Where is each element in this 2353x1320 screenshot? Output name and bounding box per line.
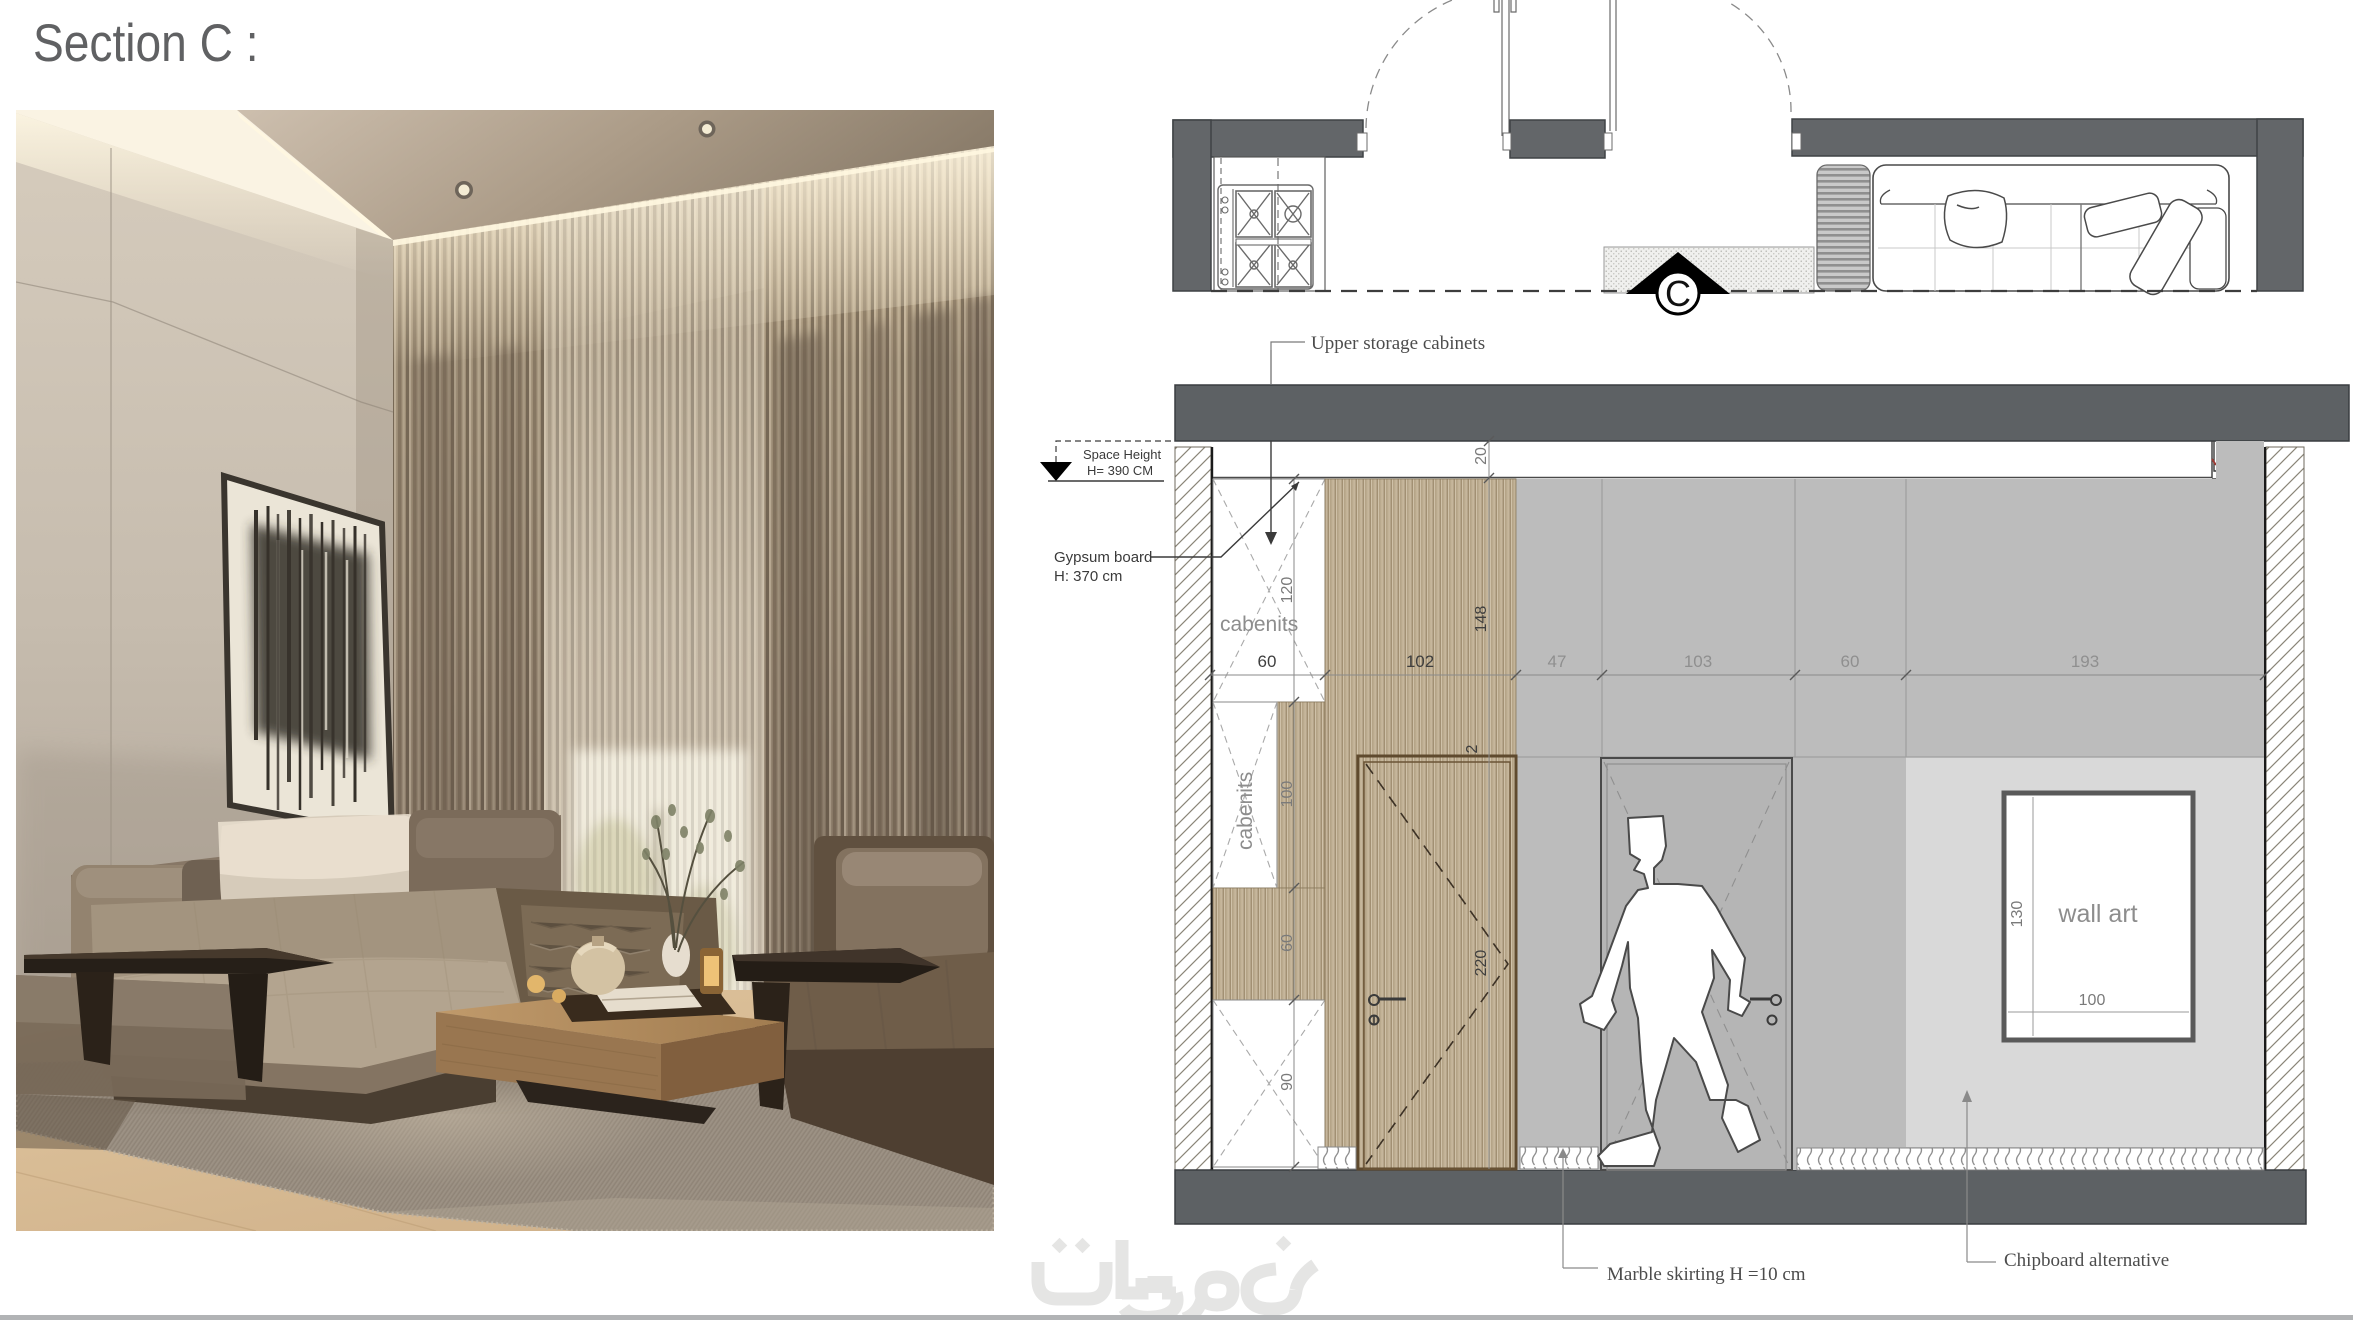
svg-text:Upper storage cabinets: Upper storage cabinets	[1311, 333, 1485, 354]
svg-text:Chipboard alternative: Chipboard alternative	[2004, 1250, 2169, 1271]
svg-text:60: 60	[1279, 934, 1296, 952]
svg-text:cabenits: cabenits	[1220, 613, 1298, 636]
svg-text:193: 193	[2071, 652, 2099, 671]
svg-text:wall art: wall art	[2057, 900, 2137, 928]
svg-text:Gypsum board: Gypsum board	[1054, 549, 1152, 566]
svg-text:148: 148	[1473, 606, 1490, 633]
svg-text:220: 220	[1473, 950, 1490, 977]
svg-text:103: 103	[1684, 652, 1712, 671]
svg-text:130: 130	[2009, 901, 2026, 928]
svg-text:60: 60	[1841, 652, 1860, 671]
svg-text:Space Height: Space Height	[1083, 447, 1161, 462]
svg-text:102: 102	[1406, 652, 1434, 671]
svg-text:cabenits: cabenits	[1234, 772, 1257, 850]
svg-text:H= 390 CM: H= 390 CM	[1087, 463, 1153, 478]
svg-text:47: 47	[1548, 652, 1567, 671]
svg-text:C: C	[1665, 273, 1691, 314]
svg-text:120: 120	[1279, 577, 1296, 604]
svg-text:H: 370 cm: H: 370 cm	[1054, 568, 1122, 585]
svg-text:20: 20	[1473, 447, 1490, 465]
svg-text:90: 90	[1279, 1073, 1296, 1091]
svg-text:Marble skirting H =10 cm: Marble skirting H =10 cm	[1607, 1264, 1806, 1285]
svg-text:60: 60	[1258, 652, 1277, 671]
svg-text:100: 100	[1279, 781, 1296, 808]
svg-text:2: 2	[1464, 744, 1481, 753]
svg-text:100: 100	[2079, 992, 2106, 1009]
